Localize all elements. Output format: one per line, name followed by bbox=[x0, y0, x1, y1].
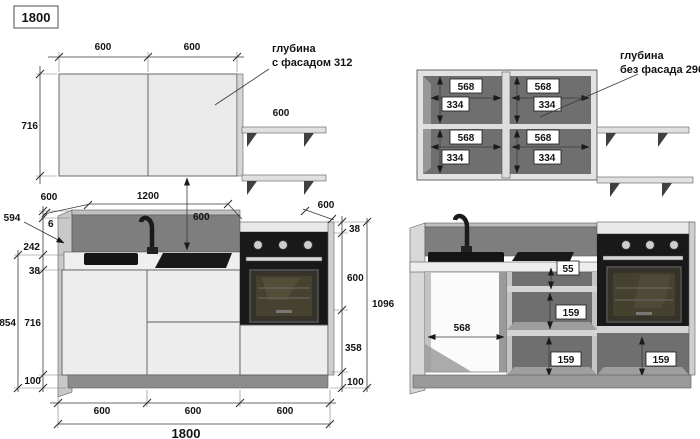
shelf-bracket bbox=[304, 181, 314, 195]
shelf-width-dim: 600 bbox=[273, 108, 290, 119]
base-kitchen-open-view: 568 55 159 159 bbox=[410, 216, 695, 394]
oven-knob bbox=[622, 241, 631, 250]
drawer-floor bbox=[507, 322, 597, 330]
column-width-dim: 600 bbox=[185, 406, 202, 417]
oven-knob bbox=[670, 241, 679, 250]
oven-knob bbox=[304, 241, 313, 250]
oven-knob bbox=[279, 241, 288, 250]
drawer-floor bbox=[597, 367, 689, 375]
cell-height-dim: 334 bbox=[539, 100, 556, 111]
cabinet-height-dim: 716 bbox=[24, 318, 41, 329]
left-side-panel bbox=[410, 223, 425, 394]
sink bbox=[84, 253, 138, 265]
shelf-bracket bbox=[610, 183, 620, 197]
plinth bbox=[413, 375, 691, 388]
counter-thickness-dim: 38 bbox=[29, 266, 41, 277]
middle-shelf bbox=[423, 124, 591, 129]
backsplash-length-dim: 594 bbox=[4, 213, 21, 224]
cell-height-dim: 334 bbox=[447, 100, 464, 111]
right-side-edge bbox=[689, 222, 695, 375]
span-dim: 1200 bbox=[137, 191, 160, 202]
drawer-rail bbox=[597, 326, 689, 333]
depth-note-line1: глубина bbox=[272, 43, 316, 55]
oven-width-dim: 600 bbox=[318, 200, 335, 211]
gap-dim: 600 bbox=[193, 212, 210, 223]
wall-shelf-lower bbox=[242, 175, 326, 195]
oven-column bbox=[240, 222, 334, 375]
depth-note-line2: с фасадом 312 bbox=[272, 57, 352, 69]
top-left-width-dim: 600 bbox=[41, 192, 58, 203]
cell-width-dim: 568 bbox=[458, 82, 475, 93]
plinth bbox=[68, 375, 328, 388]
oven-handle bbox=[603, 256, 683, 260]
wall-cabinet-open-view: 568 334 568 334 568 334 568 334 bbox=[417, 50, 700, 197]
oven-drawer-height-dim: 159 bbox=[653, 355, 670, 366]
drawer-height-dim: 159 bbox=[558, 355, 575, 366]
oven-height-dim: 600 bbox=[347, 273, 364, 284]
sink-cabinet-open: 568 bbox=[425, 272, 507, 372]
door-width-dim: 600 bbox=[95, 42, 112, 53]
wall-shelf-lower bbox=[597, 177, 693, 197]
sink bbox=[428, 252, 504, 263]
shelf-bracket bbox=[247, 133, 257, 147]
base-kitchen-facade-view: 600 1200 600 600 594 6 242 38 716 100 85… bbox=[0, 178, 395, 439]
shelf-bracket bbox=[606, 133, 616, 147]
cell-width-dim: 568 bbox=[535, 82, 552, 93]
plinth-height-dim: 100 bbox=[347, 377, 364, 388]
counter-thickness-dim: 38 bbox=[349, 224, 361, 235]
oven-logo bbox=[636, 312, 652, 315]
oven-countertop bbox=[240, 222, 332, 232]
drawer-column-open: 55 159 159 bbox=[507, 261, 597, 376]
drawing-size-header: 1800 bbox=[14, 6, 58, 28]
overall-width-dim: 1800 bbox=[172, 426, 201, 439]
base-cabinet-fronts bbox=[62, 270, 240, 375]
drawer-rail bbox=[507, 330, 597, 336]
plinth-height-dim: 100 bbox=[24, 376, 41, 387]
oven-knob bbox=[646, 241, 655, 250]
drawer-height-dim: 159 bbox=[563, 308, 580, 319]
cell-height-dim: 334 bbox=[539, 153, 556, 164]
oven-lower-front bbox=[240, 325, 328, 375]
oven-countertop bbox=[597, 222, 692, 234]
depth-note-line2: без фасада 296 bbox=[620, 64, 700, 76]
shelf-bracket bbox=[247, 181, 257, 195]
kitchen-drawing-canvas: 1800 600 600 716 600 глубина с фасадом 3… bbox=[0, 0, 700, 439]
door-width-dim: 600 bbox=[184, 42, 201, 53]
oven-logo bbox=[276, 310, 292, 313]
cooktop bbox=[155, 253, 232, 268]
backsplash-height-dim: 242 bbox=[23, 242, 40, 253]
cooktop bbox=[512, 252, 574, 261]
size-header-label: 1800 bbox=[22, 10, 51, 25]
cell-width-dim: 568 bbox=[458, 133, 475, 144]
drawer-rail bbox=[507, 286, 597, 292]
drawer-floor bbox=[507, 367, 597, 375]
cabinet-side-wall bbox=[499, 272, 507, 372]
wall-cabinet-facade-view: 600 600 716 600 глубина с фасадом 312 bbox=[21, 42, 352, 195]
backsplash bbox=[425, 227, 597, 256]
cell-width-dim: 568 bbox=[535, 133, 552, 144]
cell-height-dim: 334 bbox=[447, 153, 464, 164]
depth-note-line1: глубина bbox=[620, 50, 664, 62]
oven-column: 159 bbox=[597, 222, 695, 376]
shelf-bracket bbox=[304, 133, 314, 147]
wall-shelf-upper bbox=[597, 127, 689, 147]
backsplash-top-edge bbox=[425, 223, 597, 227]
backsplash bbox=[72, 215, 240, 252]
wall-shelf-upper bbox=[242, 127, 326, 147]
cabinet-height-dim: 716 bbox=[21, 121, 38, 132]
total-height-dim: 854 bbox=[0, 318, 16, 329]
shelf-bracket bbox=[662, 183, 672, 197]
column-width-dim: 600 bbox=[94, 406, 111, 417]
sink-cabinet-width-dim: 568 bbox=[454, 323, 471, 334]
kitchen-technical-drawing: 1800 600 600 716 600 глубина с фасадом 3… bbox=[0, 0, 700, 439]
column-width-dim: 600 bbox=[277, 406, 294, 417]
top-edge-dim: 6 bbox=[48, 219, 54, 230]
oven-knob bbox=[254, 241, 263, 250]
top-gap-dim: 55 bbox=[562, 264, 574, 275]
right-side-edge bbox=[328, 222, 334, 375]
lower-height-dim: 358 bbox=[345, 343, 362, 354]
shelf-bracket bbox=[658, 133, 668, 147]
oven-handle bbox=[246, 257, 322, 261]
backsplash-top-edge bbox=[72, 210, 240, 215]
overall-height-dim: 1096 bbox=[372, 299, 395, 310]
